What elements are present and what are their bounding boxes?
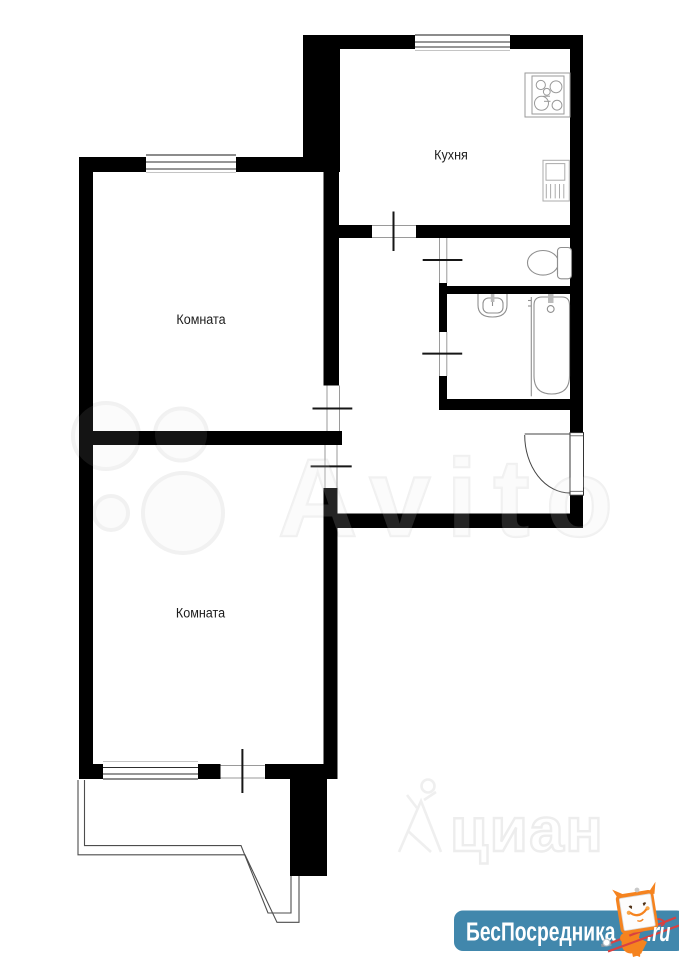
svg-text:БесПосредника: БесПосредника (466, 918, 616, 946)
svg-text:Комната: Комната (176, 605, 226, 621)
svg-text:.ru: .ru (647, 916, 670, 946)
svg-text:Кухня: Кухня (434, 147, 468, 163)
svg-text:Avito: Avito (278, 437, 629, 560)
svg-text:Комната: Комната (176, 311, 226, 327)
svg-text:циан: циан (450, 796, 604, 865)
